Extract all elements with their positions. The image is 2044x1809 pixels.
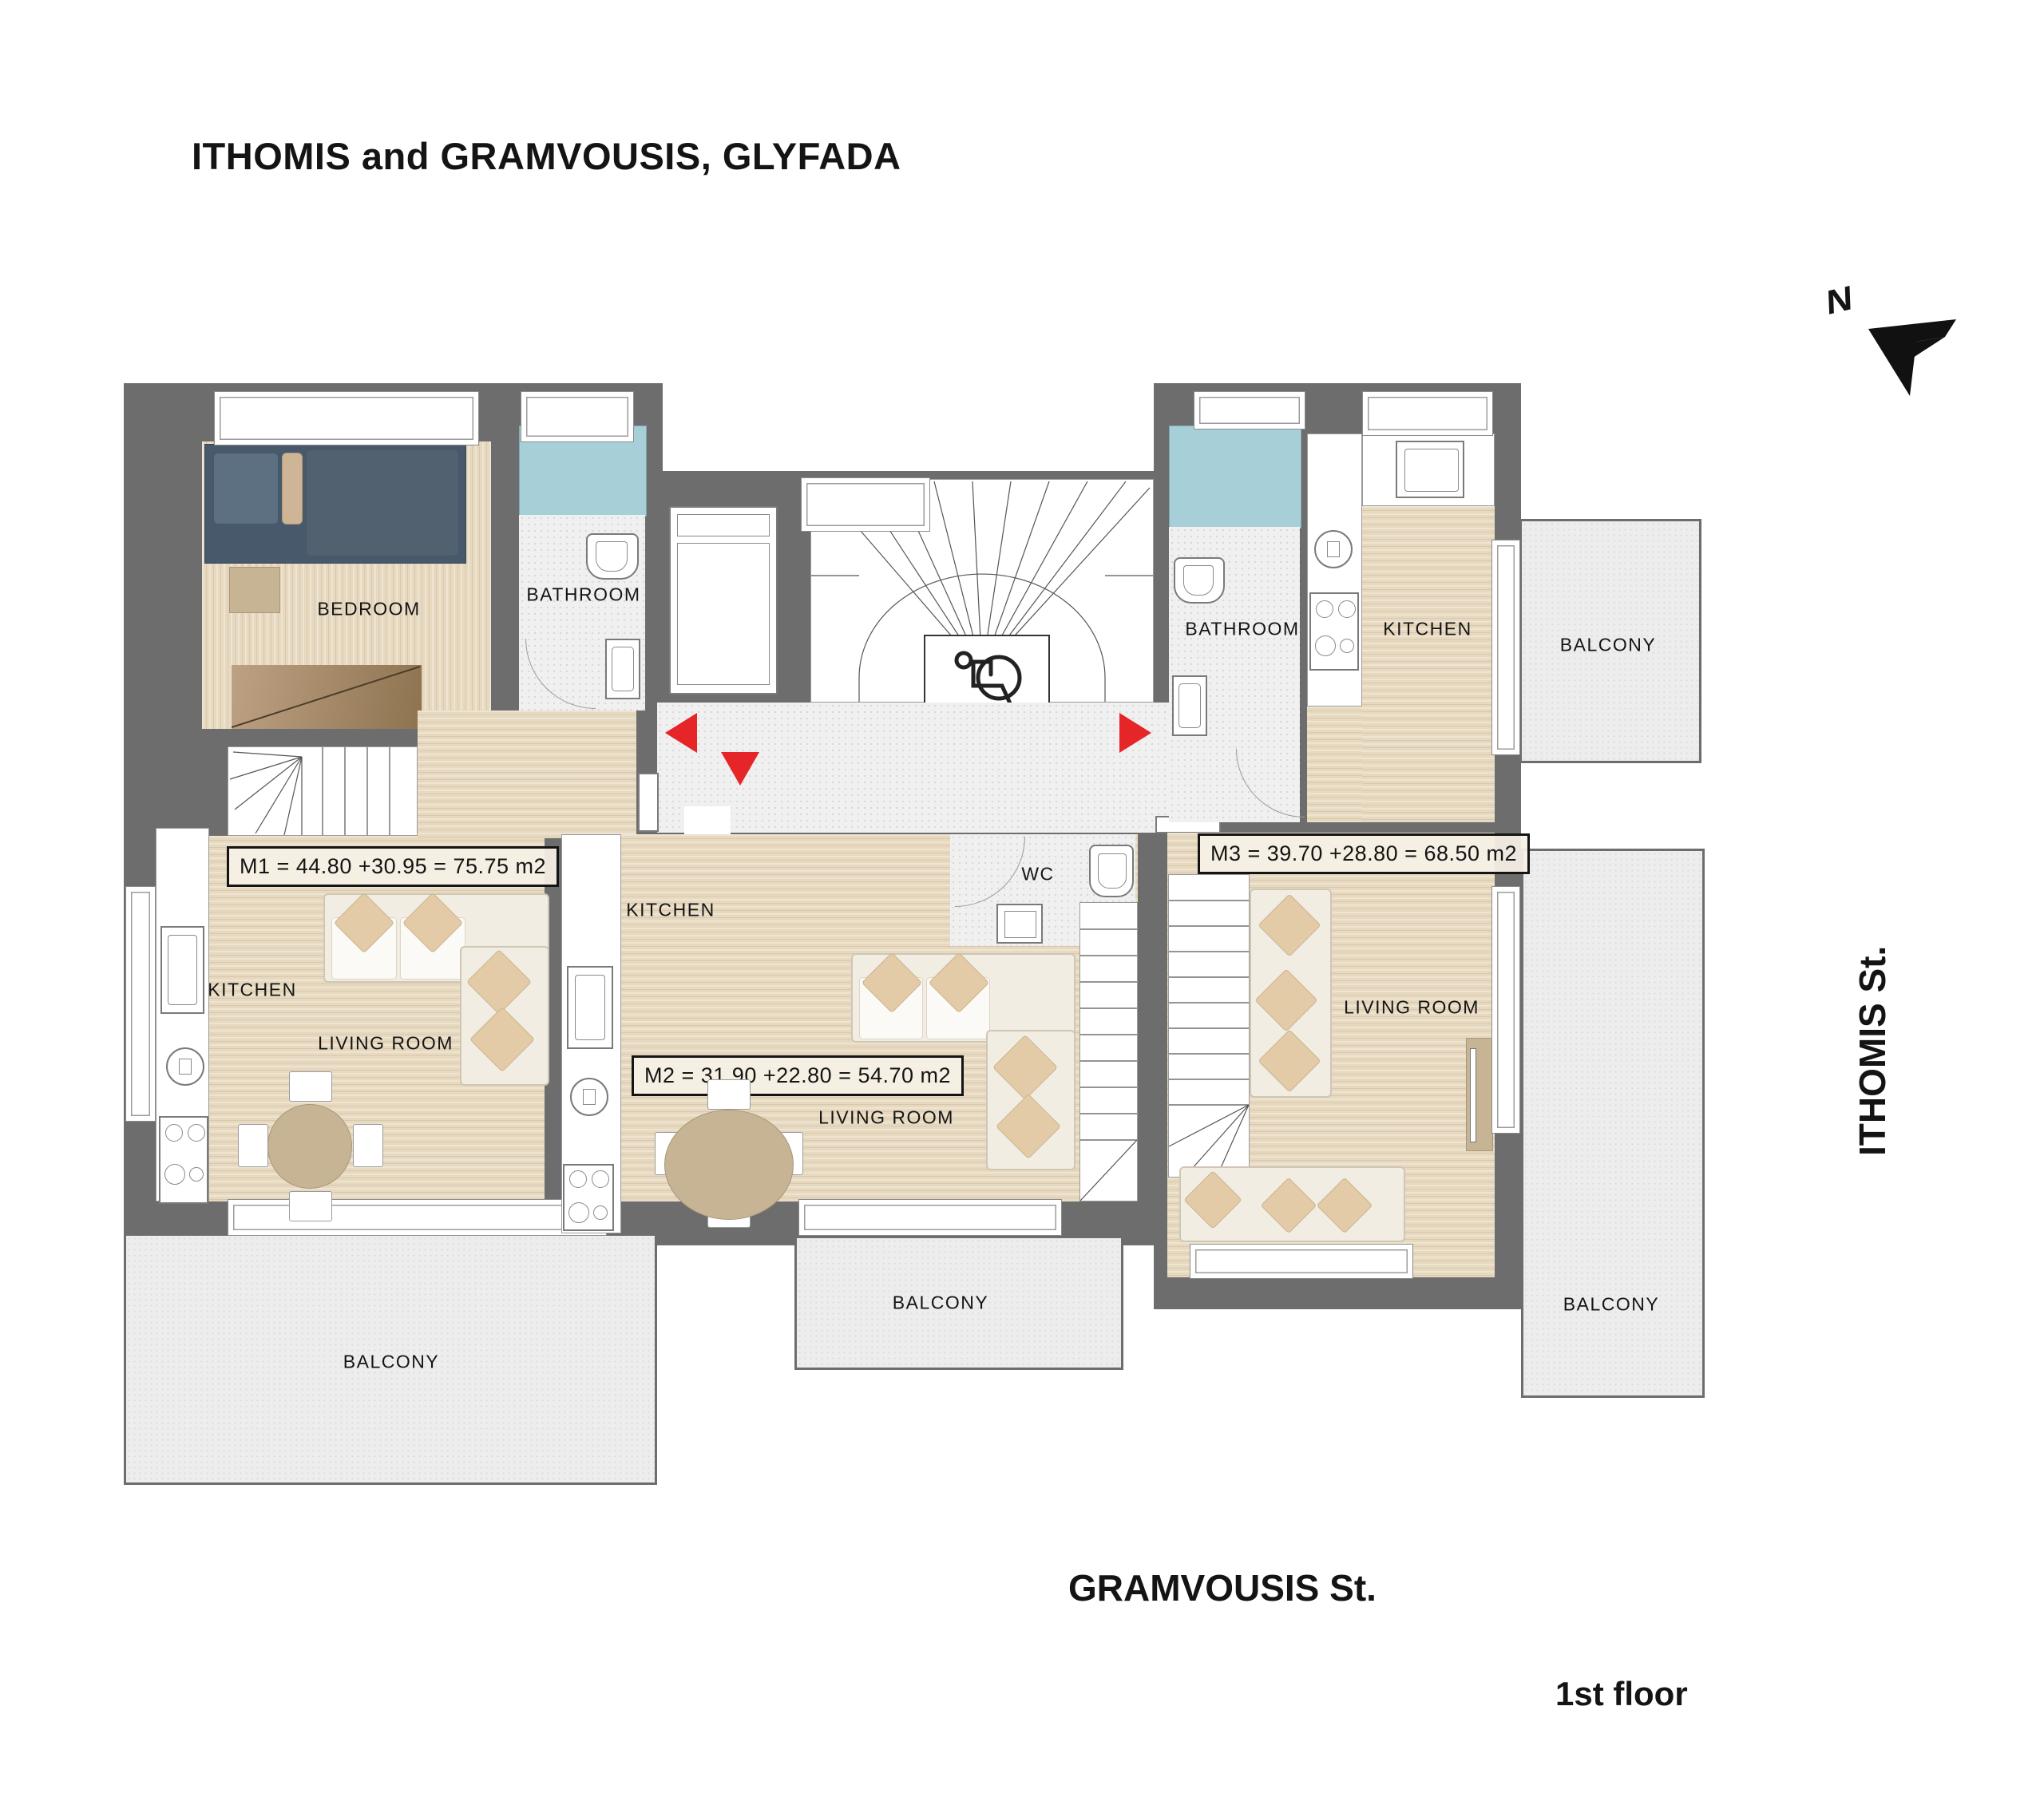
m1-bath-sink [605,639,640,699]
m2-wc-label: WC [1021,865,1054,884]
street-label-ithomis: ITHOMIS St. [1851,821,1894,1156]
m1-stove [159,1116,208,1204]
entrance-arrow-m3-icon [1119,713,1151,753]
floor-level-label: 1st floor [1555,1675,1688,1713]
m3-internal-stair [1168,874,1250,1178]
m2-washer [570,1078,608,1116]
m3-bottom-window [1190,1244,1413,1279]
m3-sofa-horizontal [1179,1166,1405,1242]
elevator [669,506,778,695]
page-title: ITHOMIS and GRAMVOUSIS, GLYFADA [192,134,901,178]
m2-chair [707,1079,751,1110]
m1-bedroom-window [214,391,479,445]
compass-north-label: N [1826,279,1853,323]
m3-living-label: LIVING ROOM [1344,999,1480,1017]
core-closet [801,477,930,532]
m1-bottom-window [228,1199,607,1236]
balcony-m3-bottom-label: BALCONY [1563,1296,1659,1314]
m3-right-window-bottom [1491,886,1520,1134]
m3-washer [1314,530,1353,568]
m2-stove [563,1164,614,1231]
m3-kitchen-floor [1362,506,1495,822]
m3-kitchen-window [1362,391,1493,436]
m1-wardrobe [232,665,422,729]
m1-chair [289,1191,332,1221]
m2-wc-toilet [1089,845,1134,897]
m1-kitchen-label: KITCHEN [208,981,296,1000]
m1-living-label: LIVING ROOM [318,1035,454,1053]
m3-kitchen-sink [1396,441,1464,498]
m1-washer [166,1047,204,1086]
m3-toilet [1174,557,1225,604]
m3-stove [1309,592,1359,671]
street-label-gramvousis: GRAMVOUSIS St. [1068,1566,1377,1609]
m1-entrance-door [638,773,659,832]
m2-kitchen-label: KITCHEN [626,901,715,920]
m3-bathroom-window [1194,391,1305,429]
m2-kitchen-sink [567,966,613,1049]
m1-bathroom-window [521,391,634,442]
balcony-m3-top-label: BALCONY [1560,636,1656,655]
m3-kitchen-label: KITCHEN [1383,620,1472,639]
m1-bed [204,444,466,564]
m1-bedroom-label: BEDROOM [317,600,420,619]
m2-area-box: M2 = 31.90 +22.80 = 54.70 m2 [632,1055,964,1096]
m1-toilet [586,533,639,580]
m3-sofa-vertical [1250,889,1332,1098]
m1-internal-stair [228,746,418,836]
m1-chair [238,1124,268,1167]
balcony-m3-bottom [1521,849,1705,1398]
m2-living-label: LIVING ROOM [818,1109,954,1127]
balcony-m1-label: BALCONY [343,1353,439,1372]
entrance-arrow-m1-icon [665,713,697,753]
m2-wc-sink [996,904,1043,944]
m1-chair [289,1071,332,1102]
m2-entrance-door-gap [684,806,731,835]
m3-bath-sink [1172,675,1207,736]
m1-sofa-chaise [460,946,549,1086]
m1-entry-floor [418,711,636,838]
m1-area-box: M1 = 44.80 +30.95 = 75.75 m2 [227,846,559,887]
m1-left-window [125,886,156,1122]
m1-nightstand [229,567,280,613]
m3-kitchen-floor-2 [1307,707,1362,822]
m2-bottom-window [798,1199,1062,1236]
m1-dining-table [267,1104,352,1189]
m3-area-box: M3 = 39.70 +28.80 = 68.50 m2 [1198,833,1530,874]
m2-internal-stair [1079,902,1138,1201]
m3-shower [1169,426,1301,528]
m3-tv-unit [1466,1038,1493,1151]
north-arrow-icon [1867,318,1963,399]
m3-right-window-top [1491,540,1520,755]
balcony-m2-label: BALCONY [893,1294,988,1312]
entrance-arrow-m2-icon [721,752,759,786]
m1-bathroom-label: BATHROOM [526,586,640,604]
floor-plan-page: ITHOMIS and GRAMVOUSIS, GLYFADA N ITHOMI… [0,0,2044,1809]
m1-chair [353,1124,383,1167]
m2-dining-table [664,1110,794,1220]
m1-kitchen-sink [160,926,204,1014]
m2-sofa-chaise [986,1030,1075,1170]
m3-bathroom-label: BATHROOM [1185,620,1299,639]
